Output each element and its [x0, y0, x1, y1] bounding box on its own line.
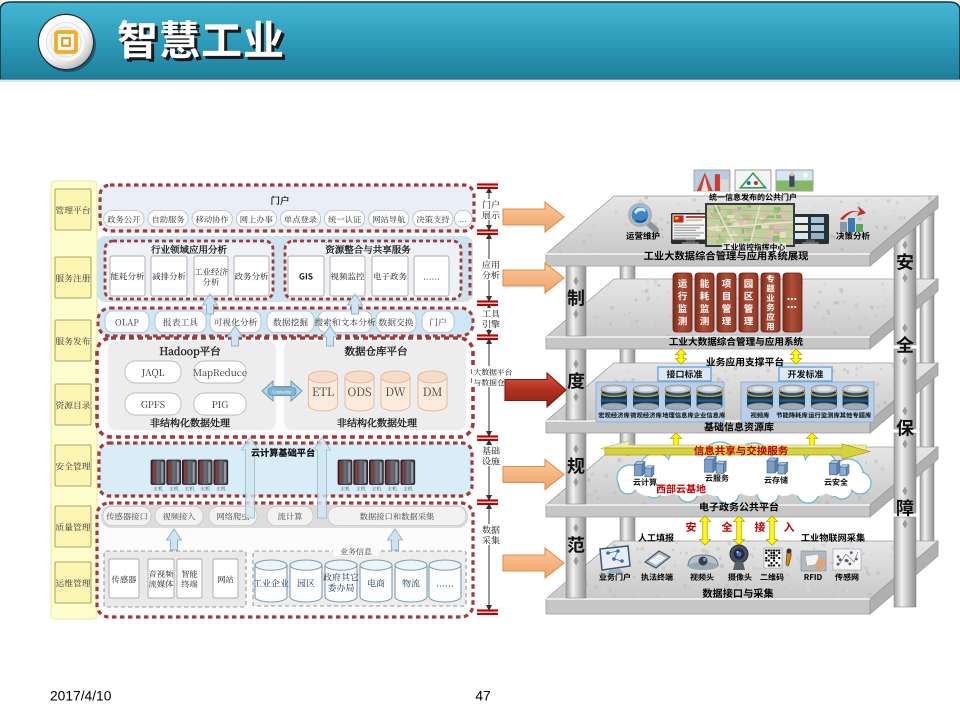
- svg-text:度: 度: [567, 368, 585, 394]
- svg-text:大数据平台: 大数据平台: [474, 367, 513, 378]
- svg-text:能耗分析: 能耗分析: [110, 271, 145, 283]
- svg-text:政务分析: 政务分析: [234, 271, 269, 283]
- svg-text:主机: 主机: [403, 486, 413, 493]
- svg-text:Connector: Connector: [272, 390, 292, 395]
- svg-text:接: 接: [755, 519, 766, 535]
- svg-text:......: ......: [423, 271, 440, 283]
- svg-text:采集: 采集: [482, 534, 500, 547]
- svg-text:网站导航: 网站导航: [372, 213, 406, 225]
- svg-text:运行监测库: 运行监测库: [808, 411, 840, 420]
- svg-text:云计算: 云计算: [633, 477, 657, 488]
- svg-text:电子政务公共平台: 电子政务公共平台: [699, 499, 779, 514]
- svg-text:流计算: 流计算: [278, 511, 303, 523]
- svg-text:搜索和文本分析: 搜索和文本分析: [314, 316, 376, 329]
- svg-text:安: 安: [686, 519, 697, 535]
- svg-text:门户: 门户: [429, 316, 447, 329]
- svg-text:展示: 展示: [482, 209, 501, 222]
- svg-text:宏观经济库: 宏观经济库: [598, 411, 630, 420]
- svg-text:二维码: 二维码: [760, 572, 784, 583]
- svg-text:障: 障: [896, 495, 914, 521]
- svg-text:运维管理: 运维管理: [55, 577, 90, 590]
- svg-text:主机: 主机: [340, 486, 350, 493]
- svg-text:节能降耗库: 节能降耗库: [776, 411, 808, 420]
- svg-text:人工填报: 人工填报: [638, 531, 674, 544]
- svg-text:数据交换: 数据交换: [378, 316, 413, 329]
- svg-text:理: 理: [722, 313, 732, 327]
- svg-text:主机: 主机: [169, 486, 179, 493]
- svg-text:Hadoop平台: Hadoop平台: [159, 344, 221, 359]
- svg-text:分析: 分析: [482, 269, 500, 282]
- svg-text:终端: 终端: [181, 578, 198, 590]
- svg-text:业务门户: 业务门户: [599, 572, 631, 583]
- svg-text:数据接口和数据采集: 数据接口和数据采集: [360, 511, 435, 523]
- svg-text:分析: 分析: [202, 276, 220, 288]
- svg-text:质量管理: 质量管理: [55, 521, 90, 534]
- svg-text:决策分析: 决策分析: [836, 230, 871, 242]
- svg-text:GPFS: GPFS: [141, 397, 165, 411]
- svg-text:主机: 主机: [216, 486, 226, 493]
- svg-text:西部云基地: 西部云基地: [656, 481, 706, 496]
- svg-text:减排分析: 减排分析: [152, 271, 187, 283]
- svg-text:决策支持: 决策支持: [416, 213, 450, 225]
- svg-text:主机: 主机: [356, 486, 366, 493]
- svg-text:全: 全: [722, 519, 733, 535]
- svg-text:基础信息资源库: 基础信息资源库: [704, 419, 774, 434]
- svg-text:非结构化数据处理: 非结构化数据处理: [150, 415, 231, 430]
- svg-text:资源整合与共享服务: 资源整合与共享服务: [325, 242, 411, 256]
- svg-text:行业领域应用分析: 行业领域应用分析: [151, 242, 228, 256]
- svg-text:RFID: RFID: [804, 572, 823, 583]
- svg-text:全: 全: [896, 332, 914, 358]
- svg-text:传感器: 传感器: [112, 574, 138, 586]
- svg-text:MapReduce: MapReduce: [193, 365, 247, 379]
- svg-text:JAQL: JAQL: [141, 365, 165, 379]
- svg-text:委办局: 委办局: [327, 581, 354, 594]
- svg-text:业务信息: 业务信息: [340, 547, 373, 558]
- svg-text:工业大数据综合管理与应用系统展现: 工业大数据综合管理与应用系统展现: [644, 248, 809, 263]
- svg-text:测: 测: [700, 313, 710, 327]
- svg-text:传感器接口: 传感器接口: [106, 511, 148, 523]
- svg-text:运营维护: 运营维护: [626, 230, 660, 242]
- svg-text:电子政务: 电子政务: [373, 271, 408, 283]
- svg-text:电商: 电商: [367, 577, 385, 590]
- svg-text:报表工具: 报表工具: [163, 316, 199, 329]
- svg-text:保: 保: [896, 415, 914, 441]
- svg-text:入: 入: [784, 519, 795, 535]
- svg-text:安: 安: [896, 249, 914, 275]
- svg-text:服务发布: 服务发布: [55, 335, 90, 348]
- svg-text:网站: 网站: [217, 574, 234, 586]
- svg-text:执法终端: 执法终端: [641, 572, 673, 583]
- svg-text:工业大数据综合管理与应用系统: 工业大数据综合管理与应用系统: [669, 334, 804, 348]
- svg-text:DW: DW: [385, 384, 406, 400]
- svg-text:视频头: 视频头: [690, 572, 714, 583]
- svg-text:理: 理: [744, 313, 754, 327]
- svg-text:视频接入: 视频接入: [162, 511, 196, 523]
- svg-text:云安全: 云安全: [824, 477, 848, 488]
- svg-text:自助服务: 自助服务: [151, 213, 185, 225]
- svg-text:非结构化数据处理: 非结构化数据处理: [337, 415, 418, 430]
- svg-text:数据仓库平台: 数据仓库平台: [345, 344, 408, 359]
- svg-text:开发标准: 开发标准: [787, 367, 823, 380]
- svg-text:其他专题库: 其他专题库: [840, 411, 872, 420]
- svg-text:资源目录: 资源目录: [55, 399, 90, 412]
- svg-text:工业物联网采集: 工业物联网采集: [801, 530, 865, 544]
- svg-text:ETL: ETL: [312, 384, 334, 400]
- svg-text:园区: 园区: [297, 577, 315, 590]
- svg-text:设施: 设施: [482, 455, 500, 468]
- svg-text:传感网: 传感网: [835, 572, 859, 583]
- svg-text:DM: DM: [423, 384, 443, 400]
- svg-text:数据接口与采集: 数据接口与采集: [702, 585, 773, 600]
- svg-text:云计算基础平台: 云计算基础平台: [251, 445, 315, 459]
- svg-text:统一信息发布的公共门户: 统一信息发布的公共门户: [709, 192, 797, 203]
- svg-text:...: ...: [459, 214, 467, 225]
- svg-text:数据挖掘: 数据挖掘: [273, 316, 308, 329]
- svg-text:业务应用支撑平台: 业务应用支撑平台: [706, 355, 785, 369]
- svg-text:47: 47: [475, 689, 490, 704]
- svg-text:工业企业: 工业企业: [253, 577, 289, 590]
- svg-text:主机: 主机: [184, 486, 194, 493]
- svg-text:引擎: 引擎: [482, 318, 500, 331]
- svg-text:OLAP: OLAP: [115, 316, 139, 329]
- svg-text:用: 用: [766, 320, 775, 332]
- svg-text:管理平台: 管理平台: [55, 204, 90, 217]
- svg-text:门户: 门户: [270, 193, 289, 207]
- svg-text:制: 制: [567, 285, 585, 311]
- svg-text:主机: 主机: [387, 486, 397, 493]
- svg-text:规: 规: [567, 453, 585, 479]
- svg-text:测: 测: [678, 313, 688, 327]
- svg-text:主机: 主机: [371, 486, 381, 493]
- svg-text:单点登录: 单点登录: [284, 213, 317, 225]
- svg-text:视频监控: 视频监控: [330, 271, 365, 283]
- svg-text:移动协作: 移动协作: [196, 213, 230, 225]
- svg-text:流媒体: 流媒体: [149, 578, 175, 590]
- svg-text:PIG: PIG: [212, 397, 229, 411]
- svg-text:范: 范: [567, 532, 585, 558]
- svg-text:物流: 物流: [402, 577, 420, 590]
- svg-text:网上办事: 网上办事: [240, 213, 274, 225]
- svg-text:2017/4/10: 2017/4/10: [50, 689, 112, 704]
- svg-text:地理信息库: 地理信息库: [662, 411, 694, 420]
- svg-text:主机: 主机: [200, 486, 210, 493]
- svg-text:接口标准: 接口标准: [666, 367, 702, 380]
- svg-text:ODS: ODS: [348, 384, 372, 400]
- svg-text:服务注册: 服务注册: [55, 272, 90, 285]
- svg-text:微观经济库: 微观经济库: [630, 411, 662, 420]
- svg-text:摄像头: 摄像头: [728, 572, 752, 583]
- svg-text:主机: 主机: [153, 486, 163, 493]
- svg-text:云服务: 云服务: [705, 473, 729, 484]
- svg-text:......: ......: [436, 577, 454, 590]
- svg-text:安全管理: 安全管理: [55, 460, 90, 473]
- svg-text:云存储: 云存储: [764, 475, 788, 486]
- svg-text:智慧工业: 智慧工业: [117, 7, 285, 67]
- svg-text:GIS: GIS: [299, 271, 313, 283]
- svg-text:政务公开: 政务公开: [107, 213, 141, 225]
- svg-text:统一认证: 统一认证: [328, 213, 361, 225]
